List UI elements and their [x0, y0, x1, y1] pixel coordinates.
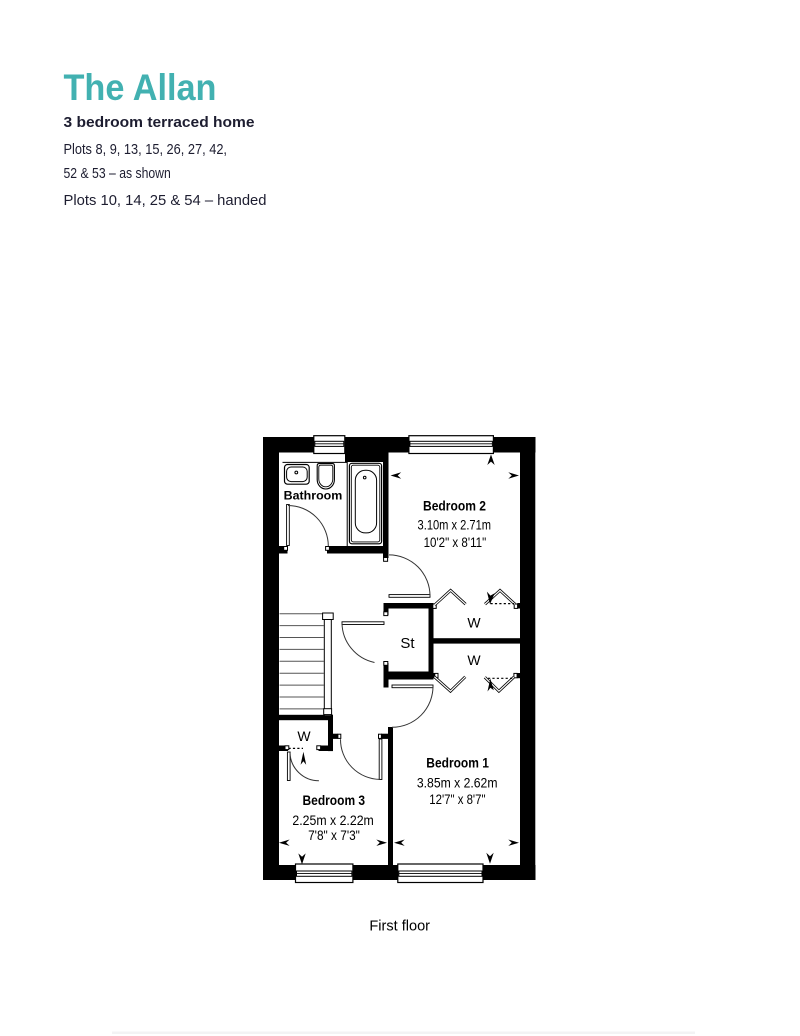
svg-text:St: St — [400, 635, 415, 652]
svg-text:7'8" x 7'3": 7'8" x 7'3" — [308, 827, 360, 843]
svg-text:2.25m x 2.22m: 2.25m x 2.22m — [292, 812, 373, 828]
svg-text:3.85m x 2.62m: 3.85m x 2.62m — [417, 775, 498, 791]
svg-text:First floor: First floor — [369, 917, 430, 934]
svg-text:Plots 8, 9, 13, 15, 26, 27, 42: Plots 8, 9, 13, 15, 26, 27, 42, — [64, 141, 228, 158]
svg-text:Bedroom 1: Bedroom 1 — [426, 754, 489, 770]
svg-text:W: W — [467, 652, 481, 668]
svg-text:Bathroom: Bathroom — [284, 489, 343, 503]
svg-text:Bedroom 2: Bedroom 2 — [423, 497, 486, 513]
svg-text:10'2" x 8'11": 10'2" x 8'11" — [424, 534, 487, 550]
svg-text:Plots 10, 14, 25 & 54 – handed: Plots 10, 14, 25 & 54 – handed — [64, 192, 267, 209]
svg-text:52 & 53 – as shown: 52 & 53 – as shown — [64, 165, 171, 182]
svg-text:12'7" x 8'7": 12'7" x 8'7" — [429, 791, 485, 807]
svg-text:The Allan: The Allan — [64, 66, 217, 108]
svg-text:W: W — [467, 614, 481, 630]
svg-text:3 bedroom terraced home: 3 bedroom terraced home — [64, 115, 255, 131]
svg-text:Bedroom 3: Bedroom 3 — [303, 792, 366, 808]
svg-text:W: W — [297, 728, 311, 744]
svg-text:3.10m x 2.71m: 3.10m x 2.71m — [418, 517, 492, 533]
